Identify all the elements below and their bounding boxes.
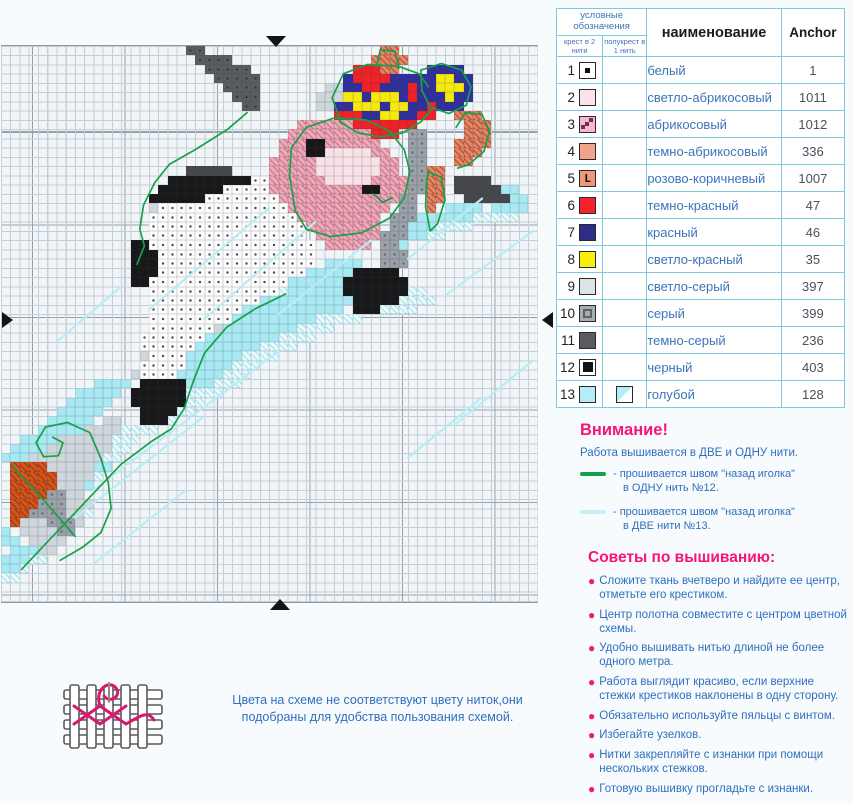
- stitch-cell: [408, 213, 417, 222]
- stitch-cell: [454, 65, 463, 74]
- stitch-cell: [316, 102, 325, 111]
- stitch-cell: [195, 324, 204, 333]
- stitch-cell: [436, 92, 445, 101]
- stitch-cell: [510, 185, 519, 194]
- stitch-cell: [408, 120, 417, 129]
- stitch-cell: [38, 490, 47, 499]
- stitch-cell: [57, 527, 66, 536]
- stitch-cell: [288, 139, 297, 148]
- stitch-cell: [232, 268, 241, 277]
- stitch-cell: [242, 259, 251, 268]
- legend-row-number: 11: [560, 333, 575, 348]
- stitch-cell: [279, 139, 288, 148]
- stitch-cell: [84, 453, 93, 462]
- stitch-cell: [223, 250, 232, 259]
- stitch-cell: [158, 398, 167, 407]
- stitch-cell: [316, 176, 325, 185]
- stitch-cell: [325, 240, 334, 249]
- stitch-cell: [325, 185, 334, 194]
- stitch-cell: [306, 176, 315, 185]
- stitch-cell: [251, 185, 260, 194]
- stitch-cell: [66, 407, 75, 416]
- stitch-cell: [205, 314, 214, 323]
- stitch-cell: [417, 176, 426, 185]
- stitch-cell: [149, 305, 158, 314]
- stitch-cell: [232, 351, 241, 360]
- stitch-cell: [399, 120, 408, 129]
- bullet-icon: ●: [588, 749, 595, 777]
- stitch-cell: [316, 129, 325, 138]
- stitch-cell: [454, 139, 463, 148]
- stitch-cell: [306, 314, 315, 323]
- stitch-cell: [390, 305, 399, 314]
- stitch-cell: [29, 546, 38, 555]
- legend-row: 11темно-серый236: [557, 327, 845, 354]
- stitch-cell: [464, 203, 473, 212]
- stitch-cell: [121, 379, 130, 388]
- stitch-cell: [20, 527, 29, 536]
- stitch-cell: [223, 83, 232, 92]
- stitch-cell: [149, 388, 158, 397]
- thread-name: абрикосовый: [647, 111, 781, 138]
- stitch-type-text: - прошивается швом "назад иголка"в ОДНУ …: [613, 467, 795, 496]
- stitch-cell: [251, 222, 260, 231]
- stitch-cell: [242, 176, 251, 185]
- stitch-cell: [84, 416, 93, 425]
- stitch-cell: [84, 462, 93, 471]
- stitch-cell: [232, 324, 241, 333]
- stitch-cell: [269, 342, 278, 351]
- stitch-cell: [353, 120, 362, 129]
- stitch-cell: [482, 129, 491, 138]
- stitch-cell: [223, 194, 232, 203]
- stitch-cell: [186, 324, 195, 333]
- stitch-cell: [140, 351, 149, 360]
- stitch-cell: [158, 407, 167, 416]
- stitch-cell: [223, 287, 232, 296]
- legend-header-symbols: условные обозначения: [557, 9, 647, 36]
- stitch-cell: [205, 379, 214, 388]
- stitch-cell: [269, 277, 278, 286]
- stitch-cell: [371, 176, 380, 185]
- stitch-cell: [353, 277, 362, 286]
- stitch-cell: [260, 222, 269, 231]
- stitch-cell: [214, 324, 223, 333]
- stitch-cell: [149, 259, 158, 268]
- stitch-cell: [66, 527, 75, 536]
- stitch-cell: [325, 324, 334, 333]
- stitch-cell: [242, 287, 251, 296]
- stitch-cell: [445, 65, 454, 74]
- stitch-cell: [454, 157, 463, 166]
- stitch-cell: [362, 92, 371, 101]
- color-swatch: [579, 386, 596, 403]
- stitch-cell: [279, 185, 288, 194]
- stitch-cell: [251, 83, 260, 92]
- stitch-cell: [279, 305, 288, 314]
- stitch-cell: [94, 444, 103, 453]
- stitch-cell: [251, 314, 260, 323]
- stitch-cell: [214, 314, 223, 323]
- stitch-cell: [57, 444, 66, 453]
- stitch-cell: [38, 435, 47, 444]
- stitch-cell: [140, 425, 149, 434]
- stitch-cell: [195, 176, 204, 185]
- stitch-cell: [269, 213, 278, 222]
- stitch-cell: [260, 351, 269, 360]
- stitch-cell: [464, 92, 473, 101]
- stitch-cell: [288, 222, 297, 231]
- stitch-cell: [94, 435, 103, 444]
- stitch-cell: [177, 277, 186, 286]
- stitch-cell: [186, 231, 195, 240]
- stitch-cell: [29, 555, 38, 564]
- stitch-cell: [371, 55, 380, 64]
- stitch-cell: [362, 305, 371, 314]
- stitch-cell: [10, 444, 19, 453]
- stitch-cell: [140, 370, 149, 379]
- stitch-cell: [158, 314, 167, 323]
- stitch-cell: [408, 74, 417, 83]
- stitch-cell: [353, 139, 362, 148]
- stitch-cell: [325, 287, 334, 296]
- stitch-cell: [362, 157, 371, 166]
- stitch-cell: [297, 176, 306, 185]
- stitch-cell: [260, 296, 269, 305]
- stitch-cell: [427, 74, 436, 83]
- stitch-cell: [316, 268, 325, 277]
- stitch-cell: [353, 176, 362, 185]
- stitch-cell: [149, 231, 158, 240]
- stitch-cell: [325, 268, 334, 277]
- stitch-cell: [251, 213, 260, 222]
- stitch-cell: [168, 416, 177, 425]
- stitch-cell: [158, 361, 167, 370]
- stitch-cell: [75, 435, 84, 444]
- thread-name: серый: [647, 300, 781, 327]
- stitch-cell: [325, 148, 334, 157]
- stitch-cell: [260, 194, 269, 203]
- thread-legend-table: условные обозначения наименование Anchor…: [556, 8, 845, 408]
- stitch-cell: [371, 231, 380, 240]
- stitch-cell: [269, 351, 278, 360]
- stitch-cell: [94, 398, 103, 407]
- stitch-cell: [38, 481, 47, 490]
- stitch-color-line-icon: [580, 510, 606, 514]
- stitch-cell: [464, 148, 473, 157]
- stitch-cell: [158, 259, 167, 268]
- stitch-cell: [269, 287, 278, 296]
- stitch-cell: [75, 388, 84, 397]
- stitch-cell: [186, 176, 195, 185]
- stitch-cell: [112, 435, 121, 444]
- stitch-cell: [131, 250, 140, 259]
- stitch-cell: [399, 185, 408, 194]
- stitch-cell: [334, 148, 343, 157]
- stitch-cell: [195, 388, 204, 397]
- stitch-cell: [343, 213, 352, 222]
- stitch-cell: [223, 361, 232, 370]
- stitch-cell: [390, 213, 399, 222]
- stitch-cell: [251, 296, 260, 305]
- stitch-cell: [473, 111, 482, 120]
- stitch-cell: [473, 194, 482, 203]
- stitch-cell: [168, 370, 177, 379]
- stitch-cell: [325, 120, 334, 129]
- stitch-cell: [158, 370, 167, 379]
- stitch-cell: [195, 361, 204, 370]
- bullet-icon: ●: [588, 575, 595, 603]
- stitch-cell: [214, 185, 223, 194]
- stitch-cell: [306, 268, 315, 277]
- stitch-cell: [20, 481, 29, 490]
- bullet-icon: ●: [588, 609, 595, 637]
- anchor-number: 128: [781, 381, 844, 408]
- stitch-cell: [297, 268, 306, 277]
- stitch-cell: [427, 194, 436, 203]
- stitch-cell: [343, 120, 352, 129]
- stitch-cell: [131, 435, 140, 444]
- stitch-cell: [158, 416, 167, 425]
- stitch-cell: [380, 83, 389, 92]
- stitch-cell: [10, 490, 19, 499]
- stitch-cell: [408, 83, 417, 92]
- stitch-cell: [334, 259, 343, 268]
- stitch-cell: [177, 351, 186, 360]
- stitch-cell: [195, 166, 204, 175]
- stitch-cell: [399, 83, 408, 92]
- stitch-cell: [205, 166, 214, 175]
- stitch-cell: [251, 203, 260, 212]
- stitch-cell: [334, 287, 343, 296]
- stitch-cell: [269, 250, 278, 259]
- stitch-cell: [380, 46, 389, 55]
- stitch-cell: [214, 74, 223, 83]
- legend-row: 7красный46: [557, 219, 845, 246]
- stitch-cell: [149, 398, 158, 407]
- stitch-cell: [269, 222, 278, 231]
- stitch-cell: [242, 250, 251, 259]
- stitch-cell: [214, 379, 223, 388]
- stitch-cell: [343, 287, 352, 296]
- stitch-cell: [491, 213, 500, 222]
- stitch-cell: [260, 231, 269, 240]
- stitch-cell: [177, 407, 186, 416]
- stitch-cell: [399, 305, 408, 314]
- stitch-cell: [103, 416, 112, 425]
- stitch-cell: [214, 65, 223, 74]
- stitch-cell: [390, 240, 399, 249]
- stitch-cell: [427, 83, 436, 92]
- stitch-cell: [195, 268, 204, 277]
- stitch-cell: [84, 407, 93, 416]
- stitch-cell: [75, 453, 84, 462]
- stitch-cell: [38, 444, 47, 453]
- stitch-cell: [177, 250, 186, 259]
- stitch-cell: [260, 287, 269, 296]
- stitch-cell: [390, 157, 399, 166]
- stitch-cell: [205, 55, 214, 64]
- stitch-cell: [103, 379, 112, 388]
- thread-name: черный: [647, 354, 781, 381]
- stitch-cell: [519, 203, 528, 212]
- stitch-cell: [177, 379, 186, 388]
- legend-row: 4темно-абрикосовый336: [557, 138, 845, 165]
- stitch-cell: [436, 185, 445, 194]
- stitch-cell: [464, 139, 473, 148]
- stitch-cell: [251, 74, 260, 83]
- stitch-cell: [140, 379, 149, 388]
- stitch-cell: [482, 213, 491, 222]
- stitch-cell: [408, 139, 417, 148]
- stitch-cell: [482, 139, 491, 148]
- stitch-cell: [214, 55, 223, 64]
- stitch-cell: [242, 213, 251, 222]
- stitch-cell: [408, 111, 417, 120]
- stitch-cell: [390, 176, 399, 185]
- color-swatch: [579, 89, 596, 106]
- stitch-cell: [214, 305, 223, 314]
- stitch-cell: [195, 351, 204, 360]
- stitch-cell: [47, 462, 56, 471]
- stitch-cell: [75, 518, 84, 527]
- stitch-cell: [454, 213, 463, 222]
- stitch-cell: [279, 194, 288, 203]
- stitch-cell: [195, 203, 204, 212]
- stitch-cell: [316, 148, 325, 157]
- stitch-cell: [158, 185, 167, 194]
- stitch-cell: [168, 351, 177, 360]
- pattern-page: { "chart": { "cell_size": 9.25, "cols": …: [0, 0, 853, 768]
- stitch-cell: [103, 398, 112, 407]
- stitch-cell: [473, 120, 482, 129]
- stitch-cell: [408, 296, 417, 305]
- color-swatch: [579, 143, 596, 160]
- stitch-cell: [103, 388, 112, 397]
- stitch-cell: [491, 194, 500, 203]
- stitch-cell: [242, 324, 251, 333]
- thread-name: светло-красный: [647, 246, 781, 273]
- stitch-cell: [380, 111, 389, 120]
- stitch-cell: [131, 370, 140, 379]
- stitch-cell: [205, 277, 214, 286]
- stitch-cell: [353, 305, 362, 314]
- stitch-cell: [353, 213, 362, 222]
- stitch-cell: [149, 361, 158, 370]
- stitch-cell: [66, 472, 75, 481]
- stitch-cell: [1, 453, 10, 462]
- stitch-cell: [390, 231, 399, 240]
- stitch-cell: [223, 342, 232, 351]
- stitch-cell: [149, 213, 158, 222]
- tip-item: ●Работа выглядит красиво, если верхние с…: [588, 676, 850, 704]
- stitch-cell: [380, 305, 389, 314]
- stitch-cell: [297, 203, 306, 212]
- stitch-cell: [454, 185, 463, 194]
- stitch-cell: [103, 462, 112, 471]
- stitch-cell: [232, 185, 241, 194]
- stitch-cell: [279, 324, 288, 333]
- legend-row: 12черный403: [557, 354, 845, 381]
- stitch-cell: [223, 268, 232, 277]
- stitch-cell: [353, 194, 362, 203]
- stitch-cell: [473, 213, 482, 222]
- stitch-cell: [20, 462, 29, 471]
- stitch-cell: [66, 444, 75, 453]
- stitch-cell: [297, 148, 306, 157]
- stitch-cell: [334, 92, 343, 101]
- color-swatch: [579, 251, 596, 268]
- thread-name: голубой: [647, 381, 781, 408]
- stitch-cell: [140, 259, 149, 268]
- stitch-cell: [10, 481, 19, 490]
- stitch-cell: [260, 305, 269, 314]
- stitch-cell: [427, 92, 436, 101]
- stitch-cell: [251, 250, 260, 259]
- stitch-cell: [297, 250, 306, 259]
- stitch-cell: [297, 287, 306, 296]
- stitch-cell: [158, 324, 167, 333]
- stitch-cell: [436, 213, 445, 222]
- stitch-cell: [57, 462, 66, 471]
- stitch-cell: [288, 157, 297, 166]
- stitch-cell: [436, 74, 445, 83]
- stitch-cell: [260, 240, 269, 249]
- stitch-cell: [57, 490, 66, 499]
- stitch-cell: [380, 277, 389, 286]
- stitch-cell: [362, 194, 371, 203]
- stitch-cell: [269, 268, 278, 277]
- stitch-cell: [186, 222, 195, 231]
- stitch-cell: [158, 222, 167, 231]
- legend-row: 13голубой128: [557, 381, 845, 408]
- stitch-cell: [325, 157, 334, 166]
- stitch-cell: [501, 213, 510, 222]
- stitch-cell: [316, 185, 325, 194]
- stitch-cell: [66, 462, 75, 471]
- stitch-cell: [390, 55, 399, 64]
- stitch-cell: [390, 277, 399, 286]
- stitch-cell: [47, 481, 56, 490]
- stitch-cell: [251, 277, 260, 286]
- stitch-cell: [242, 333, 251, 342]
- stitch-cell: [66, 509, 75, 518]
- stitch-cell: [371, 222, 380, 231]
- stitch-cell: [390, 83, 399, 92]
- stitch-cell: [177, 185, 186, 194]
- anchor-number: 397: [781, 273, 844, 300]
- stitch-cell: [84, 444, 93, 453]
- stitch-cell: [464, 185, 473, 194]
- stitch-cell: [417, 296, 426, 305]
- stitch-cell: [168, 407, 177, 416]
- stitch-cell: [168, 379, 177, 388]
- color-note-line2: подобраны для удобства пользования схемо…: [205, 709, 550, 726]
- stitch-cell: [371, 74, 380, 83]
- stitch-cell: [353, 287, 362, 296]
- stitch-cell: [371, 268, 380, 277]
- stitch-cell: [436, 176, 445, 185]
- stitch-cell: [232, 83, 241, 92]
- stitch-cell: [417, 287, 426, 296]
- stitch-cell: [20, 472, 29, 481]
- stitch-cell: [57, 536, 66, 545]
- stitch-cell: [279, 240, 288, 249]
- stitch-cell: [306, 120, 315, 129]
- stitch-cell: [223, 203, 232, 212]
- stitch-cell: [168, 296, 177, 305]
- stitch-cell: [279, 287, 288, 296]
